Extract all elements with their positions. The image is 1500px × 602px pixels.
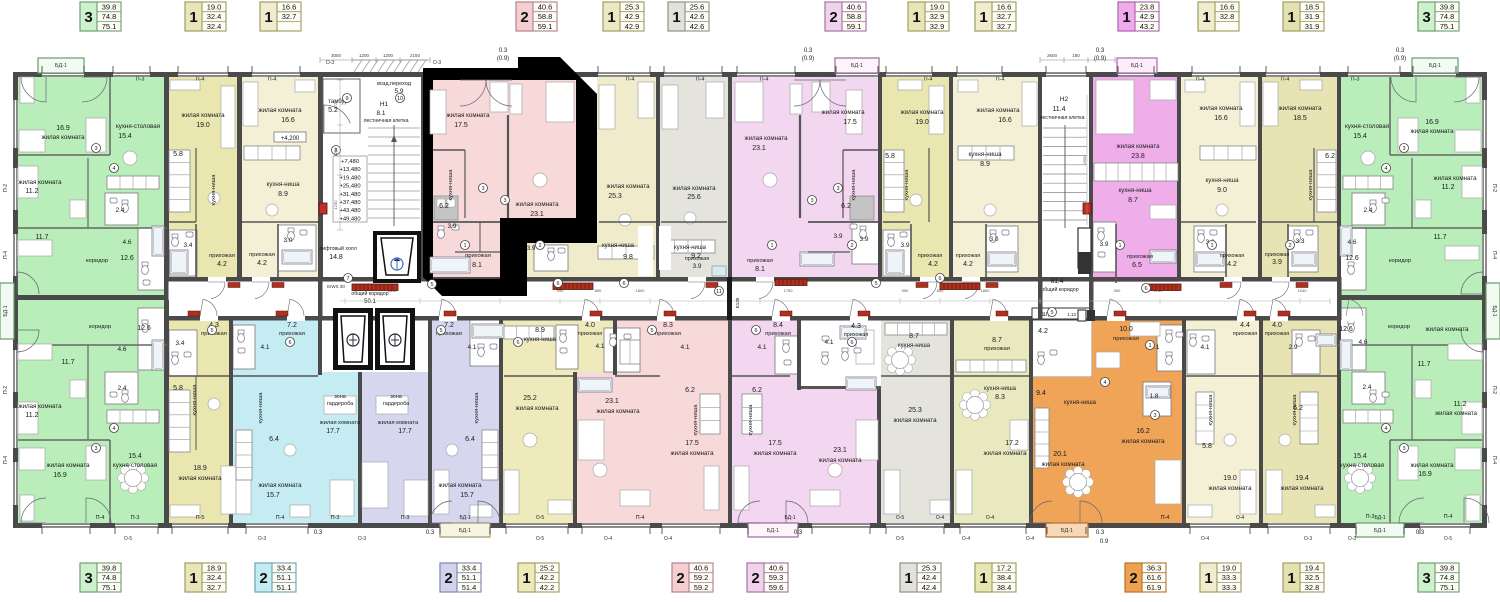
- svg-text:4: 4: [1384, 166, 1387, 172]
- svg-text:850: 850: [595, 288, 602, 293]
- svg-text:1: 1: [1148, 343, 1151, 349]
- svg-text:32.9: 32.9: [930, 12, 945, 21]
- svg-text:5.8: 5.8: [173, 385, 183, 392]
- svg-text:П-4: П-4: [1491, 251, 1497, 259]
- svg-text:4.3: 4.3: [851, 323, 861, 330]
- svg-text:П-4: П-4: [276, 515, 285, 521]
- svg-text:коридор: коридор: [89, 324, 111, 330]
- svg-text:О-4: О-4: [1201, 536, 1210, 542]
- svg-text:39.8: 39.8: [1440, 564, 1455, 573]
- svg-text:БД-1: БД-1: [459, 528, 471, 534]
- svg-text:5.8: 5.8: [885, 153, 895, 160]
- svg-text:23.1: 23.1: [833, 447, 847, 454]
- svg-text:кухня-ниша: кухня-ниша: [898, 343, 931, 349]
- svg-text:25.3: 25.3: [625, 3, 640, 12]
- svg-text:11.2: 11.2: [1453, 401, 1466, 408]
- svg-text:32.5: 32.5: [1305, 573, 1320, 582]
- svg-text:прихожая: прихожая: [747, 258, 773, 264]
- svg-text:39.8: 39.8: [102, 3, 117, 12]
- svg-text:19.0: 19.0: [915, 119, 929, 126]
- svg-text:П-4: П-4: [1491, 456, 1497, 464]
- svg-text:17.5: 17.5: [685, 440, 699, 447]
- svg-text:12.6: 12.6: [1345, 255, 1359, 262]
- svg-text:32.7: 32.7: [997, 12, 1012, 21]
- svg-text:8.4: 8.4: [773, 322, 783, 329]
- svg-text:5: 5: [1050, 310, 1053, 316]
- svg-text:прихожая: прихожая: [279, 331, 305, 337]
- svg-text:П-4: П-4: [1444, 514, 1453, 520]
- svg-text:4.2: 4.2: [963, 261, 973, 268]
- svg-text:жилая комната: жилая комната: [258, 107, 302, 114]
- svg-text:16.9: 16.9: [53, 472, 67, 479]
- svg-text:3: 3: [94, 446, 97, 452]
- svg-text:4.4: 4.4: [1240, 322, 1250, 329]
- svg-text:3.4: 3.4: [175, 340, 184, 347]
- svg-text:15.4: 15.4: [128, 453, 142, 460]
- svg-text:П-4: П-4: [626, 77, 635, 83]
- svg-text:4.6: 4.6: [122, 239, 131, 246]
- svg-text:П-2: П-2: [1491, 386, 1497, 394]
- svg-text:жилая комната: жилая комната: [1410, 128, 1454, 135]
- svg-text:51.4: 51.4: [462, 583, 477, 592]
- svg-text:42.2: 42.2: [540, 583, 555, 592]
- svg-text:жилая комната: жилая комната: [596, 408, 640, 415]
- svg-text:жилая комната: жилая комната: [1199, 105, 1243, 112]
- svg-text:5: 5: [874, 281, 877, 287]
- svg-text:4.2: 4.2: [1227, 261, 1237, 268]
- svg-text:О-3: О-3: [258, 536, 267, 542]
- svg-text:32.7: 32.7: [207, 583, 222, 592]
- svg-text:5: 5: [439, 328, 442, 334]
- svg-text:2: 2: [520, 9, 528, 26]
- svg-text:жилая комната: жилая комната: [258, 482, 302, 489]
- svg-text:9.0: 9.0: [1217, 187, 1227, 194]
- svg-text:42.4: 42.4: [922, 583, 937, 592]
- svg-text:36.3: 36.3: [1147, 564, 1162, 573]
- svg-text:П-4: П-4: [760, 77, 769, 83]
- svg-text:3: 3: [84, 9, 92, 26]
- svg-text:9.8: 9.8: [623, 254, 633, 261]
- svg-text:42.6: 42.6: [690, 22, 705, 31]
- svg-text:19.0: 19.0: [930, 3, 945, 12]
- svg-text:50.1: 50.1: [364, 299, 376, 305]
- svg-text:61.4: 61.4: [1051, 278, 1064, 285]
- svg-text:жилая комната: жилая комната: [606, 183, 650, 190]
- svg-text:4.2: 4.2: [217, 261, 227, 268]
- svg-text:15.7: 15.7: [266, 492, 280, 499]
- svg-text:1200: 1200: [333, 147, 338, 157]
- svg-text:П-4: П-4: [1196, 77, 1205, 83]
- svg-text:О-5: О-5: [536, 515, 545, 521]
- svg-text:жилая комната: жилая комната: [41, 134, 85, 141]
- svg-text:6: 6: [288, 340, 291, 346]
- svg-text:19.0: 19.0: [196, 122, 210, 129]
- svg-text:8.9: 8.9: [278, 191, 288, 198]
- svg-text:8.3: 8.3: [995, 394, 1005, 401]
- svg-text:П-2: П-2: [1491, 184, 1497, 192]
- svg-text:1800: 1800: [981, 288, 991, 293]
- svg-text:31.9: 31.9: [1305, 22, 1320, 31]
- svg-text:5.8: 5.8: [173, 151, 183, 158]
- svg-text:H1: H1: [380, 101, 389, 108]
- svg-text:3.9: 3.9: [447, 223, 456, 230]
- svg-text:кухня-ниша: кухня-ниша: [602, 243, 635, 249]
- svg-text:прихожая: прихожая: [209, 253, 235, 259]
- svg-text:3: 3: [836, 186, 839, 192]
- svg-text:39.8: 39.8: [102, 564, 117, 573]
- svg-text:15.4: 15.4: [1353, 453, 1367, 460]
- svg-text:75.1: 75.1: [102, 583, 117, 592]
- svg-text:1: 1: [607, 9, 615, 26]
- svg-text:1: 1: [1287, 570, 1295, 587]
- svg-text:59.1: 59.1: [538, 22, 553, 31]
- svg-text:1: 1: [1287, 9, 1295, 26]
- svg-text:П-2: П-2: [3, 184, 9, 192]
- svg-text:3.4: 3.4: [183, 242, 192, 249]
- svg-text:П-3: П-3: [1351, 77, 1360, 83]
- svg-text:7: 7: [346, 276, 349, 282]
- svg-text:БД-1: БД-1: [55, 63, 67, 69]
- svg-text:кухня-ниша: кухня-ниша: [984, 386, 1017, 392]
- svg-text:8.7: 8.7: [992, 337, 1002, 344]
- svg-text:3.9: 3.9: [1099, 241, 1108, 248]
- svg-text:(0.9): (0.9): [497, 56, 509, 62]
- svg-text:кухня-столовая: кухня-столовая: [113, 462, 157, 469]
- svg-text:БД-1: БД-1: [1061, 528, 1073, 534]
- svg-text:8.3: 8.3: [663, 322, 673, 329]
- svg-text:1: 1: [979, 570, 987, 587]
- svg-text:6.2: 6.2: [1293, 405, 1303, 412]
- svg-text:59.1: 59.1: [847, 22, 862, 31]
- svg-text:БД-1: БД-1: [851, 63, 863, 69]
- svg-text:жилая комната: жилая комната: [1278, 105, 1322, 112]
- svg-text:+7,480: +7,480: [341, 159, 359, 165]
- svg-text:прихожая: прихожая: [1113, 336, 1139, 342]
- svg-text:23.1: 23.1: [605, 398, 619, 405]
- svg-text:3: 3: [1153, 413, 1156, 419]
- svg-text:П-4: П-4: [924, 77, 933, 83]
- svg-text:61.9: 61.9: [1147, 583, 1162, 592]
- svg-text:кухня-ниша: кухня-ниша: [1205, 177, 1239, 184]
- svg-text:1: 1: [189, 570, 197, 587]
- svg-text:прихожая: прихожая: [1127, 254, 1153, 260]
- svg-text:кухня-ниша: кухня-ниша: [524, 337, 557, 343]
- svg-text:0.3: 0.3: [804, 48, 813, 54]
- svg-text:БД-1: БД-1: [3, 305, 9, 316]
- svg-text:18.9: 18.9: [207, 564, 222, 573]
- svg-text:кухня-ниша: кухня-ниша: [968, 151, 1002, 158]
- svg-text:П-4: П-4: [3, 251, 9, 259]
- svg-text:16.6: 16.6: [1220, 3, 1235, 12]
- svg-text:жилая комната: жилая комната: [744, 135, 788, 142]
- svg-text:32.4: 32.4: [207, 22, 222, 31]
- svg-text:жилая комната: жилая комната: [438, 482, 482, 489]
- svg-text:возд.переход: возд.переход: [377, 81, 412, 87]
- svg-text:40.6: 40.6: [538, 3, 553, 12]
- svg-text:кухня-столовая: кухня-столовая: [1340, 462, 1384, 469]
- svg-text:58.8: 58.8: [847, 12, 862, 21]
- svg-text:О-3: О-3: [433, 60, 442, 66]
- svg-text:51.1: 51.1: [277, 583, 292, 592]
- svg-text:11.2: 11.2: [1441, 184, 1454, 191]
- svg-text:16.6: 16.6: [997, 3, 1012, 12]
- svg-text:6.2: 6.2: [752, 387, 762, 394]
- svg-text:общий коридор: общий коридор: [351, 290, 388, 297]
- svg-text:кухня-ниша: кухня-ниша: [748, 404, 754, 436]
- svg-text:32.7: 32.7: [997, 22, 1012, 31]
- svg-text:прихожая: прихожая: [765, 331, 791, 337]
- svg-text:11.7: 11.7: [61, 359, 74, 366]
- svg-text:40.6: 40.6: [847, 3, 862, 12]
- svg-text:жилая комната: жилая комната: [1435, 411, 1477, 417]
- svg-text:БД-1: БД-1: [1429, 63, 1441, 69]
- svg-text:17.5: 17.5: [843, 119, 857, 126]
- svg-text:18.5: 18.5: [1293, 115, 1307, 122]
- svg-text:16.9: 16.9: [1425, 119, 1439, 126]
- svg-text:П-4: П-4: [996, 77, 1005, 83]
- svg-text:8.1: 8.1: [755, 266, 765, 273]
- svg-text:П-3: П-3: [131, 515, 140, 521]
- svg-text:П-5: П-5: [196, 515, 205, 521]
- svg-text:2: 2: [259, 570, 267, 587]
- svg-text:17.5: 17.5: [454, 122, 468, 129]
- svg-text:4.1: 4.1: [260, 344, 269, 351]
- svg-text:33.4: 33.4: [277, 564, 292, 573]
- svg-text:16.2: 16.2: [1136, 428, 1150, 435]
- svg-text:кухня-ниша: кухня-ниша: [211, 174, 217, 206]
- svg-text:11.7: 11.7: [35, 234, 48, 241]
- svg-text:6: 6: [622, 281, 625, 287]
- svg-text:4.0: 4.0: [585, 322, 595, 329]
- svg-text:1: 1: [463, 243, 466, 249]
- svg-text:жилая комната: жилая комната: [1208, 485, 1252, 492]
- svg-text:прихожая: прихожая: [249, 252, 275, 258]
- svg-text:33.3: 33.3: [1222, 573, 1237, 582]
- svg-text:2: 2: [676, 570, 684, 587]
- svg-text:17.2: 17.2: [997, 564, 1012, 573]
- svg-text:8.7: 8.7: [1128, 197, 1138, 204]
- svg-text:2.9: 2.9: [1288, 344, 1297, 351]
- svg-text:1: 1: [1118, 243, 1121, 249]
- svg-text:1: 1: [264, 9, 272, 26]
- svg-text:3: 3: [84, 570, 92, 587]
- svg-text:П-3: П-3: [401, 515, 410, 521]
- svg-text:6: 6: [754, 328, 757, 334]
- svg-text:1: 1: [189, 9, 197, 26]
- svg-text:прихожая: прихожая: [578, 331, 603, 337]
- svg-text:16.6: 16.6: [1214, 115, 1228, 122]
- svg-text:18.9: 18.9: [193, 465, 207, 472]
- svg-text:жилая комната: жилая комната: [320, 420, 361, 426]
- svg-text:3.9: 3.9: [833, 233, 842, 240]
- svg-text:14.8: 14.8: [329, 254, 343, 261]
- svg-text:БД-1: БД-1: [1374, 528, 1386, 534]
- svg-text:23.8: 23.8: [1140, 3, 1155, 12]
- svg-text:1200: 1200: [383, 53, 394, 58]
- svg-text:О-4: О-4: [936, 515, 945, 521]
- svg-text:33.4: 33.4: [462, 564, 477, 573]
- svg-text:О-4: О-4: [604, 536, 613, 542]
- svg-text:3: 3: [1402, 446, 1405, 452]
- svg-text:32.8: 32.8: [1220, 12, 1235, 21]
- svg-text:Е130: Е130: [735, 297, 740, 308]
- svg-text:4.1: 4.1: [680, 344, 689, 351]
- svg-text:6.4: 6.4: [269, 436, 279, 443]
- svg-text:8.9: 8.9: [535, 327, 545, 334]
- svg-text:2: 2: [538, 243, 541, 249]
- svg-text:17.5: 17.5: [768, 440, 782, 447]
- svg-text:П-2: П-2: [3, 386, 9, 394]
- svg-text:+37,480: +37,480: [339, 200, 360, 206]
- svg-text:прихожая: прихожая: [1265, 331, 1290, 337]
- svg-text:БД-1: БД-1: [1374, 515, 1385, 521]
- svg-text:6: 6: [1144, 286, 1147, 292]
- svg-text:15.4: 15.4: [118, 133, 132, 140]
- svg-text:3.9: 3.9: [900, 242, 909, 249]
- svg-text:кухня-ниша: кухня-ниша: [258, 392, 264, 424]
- svg-text:кухня-ниша: кухня-ниша: [474, 392, 480, 424]
- svg-text:лифтовый холл: лифтовый холл: [319, 245, 356, 252]
- svg-text:25.3: 25.3: [608, 193, 622, 200]
- svg-text:3.0: 3.0: [283, 237, 292, 244]
- svg-text:5: 5: [650, 328, 653, 334]
- svg-text:жилая комната: жилая комната: [900, 109, 944, 116]
- svg-text:жилая комната: жилая комната: [753, 450, 797, 457]
- svg-text:32.7: 32.7: [282, 12, 297, 21]
- svg-text:БД-1: БД-1: [1491, 305, 1497, 316]
- svg-text:42.9: 42.9: [1140, 12, 1155, 21]
- svg-text:3: 3: [481, 186, 484, 192]
- svg-text:1720: 1720: [333, 100, 338, 110]
- svg-text:П-4: П-4: [696, 77, 705, 83]
- svg-text:жилая комната: жилая комната: [1121, 438, 1165, 445]
- svg-text:4.1: 4.1: [1200, 344, 1209, 351]
- svg-text:4.1: 4.1: [757, 344, 766, 351]
- svg-text:4.6: 4.6: [1347, 239, 1356, 246]
- svg-text:П-3: П-3: [1366, 514, 1375, 520]
- svg-text:П-4: П-4: [268, 77, 277, 83]
- svg-text:жилая комната: жилая комната: [446, 112, 490, 119]
- svg-text:1: 1: [1122, 9, 1130, 26]
- svg-text:(0.9): (0.9): [1394, 56, 1406, 62]
- svg-text:19.0: 19.0: [207, 3, 222, 12]
- svg-text:гардероба: гардероба: [383, 401, 410, 407]
- svg-text:75.1: 75.1: [1440, 22, 1455, 31]
- svg-text:О-3: О-3: [358, 536, 367, 542]
- svg-text:51.1: 51.1: [277, 573, 292, 582]
- svg-text:жилая комната: жилая комната: [1041, 461, 1085, 468]
- svg-text:1.8: 1.8: [1149, 393, 1158, 400]
- svg-text:жилая комната: жилая комната: [983, 450, 1027, 457]
- svg-text:БД-1: БД-1: [459, 515, 470, 521]
- svg-text:П-3: П-3: [136, 77, 145, 83]
- svg-text:1: 1: [672, 9, 680, 26]
- svg-text:32.4: 32.4: [207, 12, 222, 21]
- svg-text:19.0: 19.0: [1223, 475, 1237, 482]
- svg-text:1: 1: [912, 9, 920, 26]
- svg-text:75.1: 75.1: [1440, 583, 1455, 592]
- svg-text:1: 1: [522, 570, 530, 587]
- svg-text:О-4: О-4: [664, 536, 673, 542]
- svg-text:5: 5: [210, 328, 213, 334]
- svg-text:17.7: 17.7: [326, 428, 340, 435]
- svg-text:74.8: 74.8: [102, 12, 117, 21]
- svg-text:жилая комната: жилая комната: [46, 462, 90, 469]
- svg-text:5.8: 5.8: [1202, 443, 1212, 450]
- svg-text:О-3: О-3: [1348, 536, 1357, 542]
- svg-text:0.3: 0.3: [1096, 48, 1105, 54]
- svg-text:О-5: О-5: [536, 536, 545, 542]
- svg-text:жилая комната: жилая комната: [181, 112, 225, 119]
- svg-text:980: 980: [1114, 288, 1121, 293]
- svg-text:2.4: 2.4: [115, 207, 124, 214]
- svg-text:коридор: коридор: [1389, 258, 1411, 264]
- svg-text:23.8: 23.8: [1131, 153, 1145, 160]
- svg-text:кухня-ниша: кухня-ниша: [448, 169, 454, 201]
- svg-text:1800: 1800: [636, 288, 646, 293]
- svg-text:42.9: 42.9: [625, 22, 640, 31]
- svg-text:жилая комната: жилая комната: [976, 107, 1020, 114]
- svg-text:1230: 1230: [333, 200, 338, 210]
- svg-text:прихожая: прихожая: [465, 253, 491, 259]
- svg-text:П-4: П-4: [3, 456, 9, 464]
- svg-text:74.8: 74.8: [1440, 573, 1455, 582]
- svg-text:4.2: 4.2: [928, 261, 938, 268]
- svg-text:16.6: 16.6: [998, 117, 1012, 124]
- svg-text:3.9: 3.9: [692, 263, 701, 270]
- svg-text:1: 1: [770, 243, 773, 249]
- svg-text:лестничная клетка: лестничная клетка: [1039, 115, 1084, 121]
- svg-text:16.9: 16.9: [56, 125, 70, 132]
- svg-text:51.1: 51.1: [462, 573, 477, 582]
- svg-text:6.2: 6.2: [841, 203, 851, 210]
- svg-text:кухня-ниша: кухня-ниша: [1208, 394, 1214, 426]
- svg-text:3.3: 3.3: [1295, 238, 1304, 245]
- svg-text:жилая комната: жилая комната: [1410, 462, 1454, 469]
- svg-text:П-4: П-4: [1281, 77, 1290, 83]
- svg-text:БД-1: БД-1: [784, 515, 795, 521]
- svg-text:П-3: П-3: [331, 515, 340, 521]
- svg-text:жилая комната: жилая комната: [18, 179, 62, 186]
- svg-text:12.6: 12.6: [120, 255, 134, 262]
- svg-text:8.7: 8.7: [909, 333, 919, 340]
- svg-text:кухня-ниша: кухня-ниша: [1064, 400, 1097, 406]
- svg-text:19.4: 19.4: [1305, 564, 1320, 573]
- svg-text:0.9: 0.9: [1100, 539, 1109, 545]
- svg-text:H2: H2: [1060, 96, 1069, 103]
- svg-text:4.1: 4.1: [467, 344, 476, 351]
- svg-text:2: 2: [1129, 570, 1137, 587]
- svg-text:38.4: 38.4: [997, 573, 1012, 582]
- svg-text:(0.9): (0.9): [1094, 56, 1106, 62]
- svg-text:4.6: 4.6: [117, 346, 126, 353]
- svg-text:74.8: 74.8: [1440, 12, 1455, 21]
- svg-text:9.4: 9.4: [1036, 390, 1046, 397]
- svg-text:3.0: 3.0: [989, 236, 998, 243]
- svg-text:8.1: 8.1: [376, 110, 385, 117]
- svg-text:40.6: 40.6: [694, 564, 709, 573]
- svg-text:39.8: 39.8: [1440, 3, 1455, 12]
- svg-text:42.4: 42.4: [922, 573, 937, 582]
- svg-text:950: 950: [902, 288, 909, 293]
- svg-text:жилая комната: жилая комната: [515, 405, 559, 412]
- svg-text:3.9: 3.9: [859, 236, 868, 243]
- svg-text:П-4: П-4: [96, 515, 105, 521]
- svg-text:кухня-столовая: кухня-столовая: [116, 123, 160, 130]
- svg-text:42.2: 42.2: [540, 573, 555, 582]
- svg-text:11.4: 11.4: [1052, 106, 1065, 113]
- svg-text:1: 1: [979, 9, 987, 26]
